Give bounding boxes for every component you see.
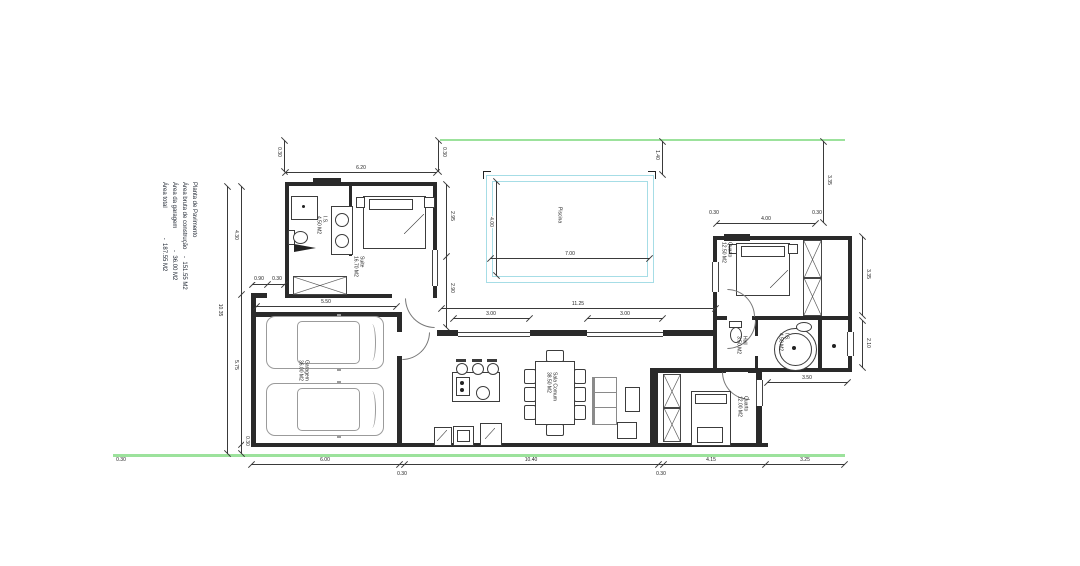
dimension-label: 1.40 bbox=[654, 149, 659, 161]
dimension-line bbox=[496, 181, 497, 276]
room-label-suite-bath: I.S. 4.50 M2 bbox=[315, 216, 328, 262]
car bbox=[266, 316, 384, 369]
dimension-label: 2.95 bbox=[449, 210, 454, 222]
pool-corner-mark bbox=[483, 171, 491, 179]
dimension-label: 5.75 bbox=[233, 359, 238, 371]
wall bbox=[663, 330, 715, 336]
dimension-line bbox=[241, 186, 242, 454]
wall bbox=[848, 236, 852, 320]
cooktop bbox=[456, 377, 470, 396]
dimension-line bbox=[716, 223, 816, 224]
coffee-table bbox=[617, 422, 637, 439]
appliance-mark bbox=[437, 430, 447, 441]
dimension-label: 2.10 bbox=[865, 337, 870, 349]
dimension-label: 4.00 bbox=[488, 216, 493, 228]
fixture-dot bbox=[832, 344, 836, 348]
dimension-label: 0.30 bbox=[271, 277, 283, 282]
chair bbox=[546, 350, 564, 362]
room-label-hall: Hall 3.50 M2 bbox=[735, 336, 748, 368]
dimension-line bbox=[587, 318, 663, 319]
room-label-garage: Garagem 36.00 M2 bbox=[297, 360, 310, 394]
wall bbox=[818, 320, 822, 368]
dimension-line bbox=[453, 318, 530, 319]
wall bbox=[713, 236, 717, 262]
dimension-line bbox=[823, 141, 824, 223]
dimension-label: 0.30 bbox=[115, 458, 127, 463]
nightstand bbox=[788, 244, 798, 254]
dimension-label: 0.30 bbox=[396, 472, 408, 477]
car bbox=[266, 383, 384, 436]
room-label-bedroom1: Quarto 12.50 M2 bbox=[720, 242, 733, 286]
dimension-label: 0.30 bbox=[441, 146, 446, 158]
dimension-line bbox=[251, 464, 845, 465]
window bbox=[432, 250, 438, 286]
burner bbox=[460, 388, 464, 392]
dimension-label: 0.30 bbox=[708, 211, 720, 216]
wardrobe bbox=[803, 240, 822, 279]
door-arc bbox=[405, 298, 435, 328]
chair bbox=[574, 405, 586, 420]
dimension-label: 6.20 bbox=[355, 166, 367, 171]
bed-bench bbox=[697, 427, 723, 443]
appliance-mark bbox=[485, 428, 495, 439]
dimension-label: 0.30 bbox=[655, 472, 667, 477]
dimension-label: 7.00 bbox=[564, 252, 576, 257]
stool bbox=[487, 363, 499, 375]
chair bbox=[574, 369, 586, 384]
dimension-label: 10.35 bbox=[217, 303, 222, 318]
dimension-line bbox=[227, 186, 228, 454]
bed-fold bbox=[404, 214, 424, 234]
pool-inner bbox=[492, 181, 648, 277]
title-area-garage: Área da garagem - 36.00 M2 bbox=[171, 182, 177, 342]
dimension-label: 11.25 bbox=[571, 302, 585, 307]
dimension-line bbox=[256, 306, 397, 307]
wall bbox=[433, 286, 437, 298]
dimension-line bbox=[284, 140, 285, 172]
sliding-door bbox=[587, 332, 663, 337]
wall bbox=[397, 356, 402, 447]
window bbox=[724, 234, 750, 241]
wall bbox=[433, 182, 437, 250]
wall bbox=[437, 330, 458, 336]
dimension-label: 0.30 bbox=[811, 211, 823, 216]
dimension-label: 3.00 bbox=[485, 312, 497, 317]
stool-back bbox=[487, 359, 497, 362]
wardrobe bbox=[803, 277, 822, 316]
boundary-line-bottom bbox=[113, 454, 845, 457]
title-plan-name: Planta de Pavimento bbox=[191, 182, 197, 332]
wall bbox=[658, 368, 726, 373]
sink bbox=[476, 386, 490, 400]
chair bbox=[546, 424, 564, 436]
room-label-suite: Suite 16.70 M2 bbox=[352, 256, 365, 298]
burner bbox=[460, 381, 464, 385]
door-arc bbox=[402, 332, 430, 360]
stool bbox=[456, 363, 468, 375]
dimension-line bbox=[441, 308, 716, 309]
bed-fold bbox=[770, 270, 788, 288]
dimension-label: 4.15 bbox=[705, 458, 717, 463]
dimension-label: 4.00 bbox=[760, 217, 772, 222]
wall bbox=[755, 356, 758, 368]
room-label-living: Sala Comum 38.50 M2 bbox=[545, 372, 558, 420]
dimension-line bbox=[490, 258, 650, 259]
shower bbox=[291, 196, 318, 220]
window bbox=[712, 262, 719, 292]
chair bbox=[574, 387, 586, 402]
room-label-bedroom2: Quarto 12.00 M2 bbox=[736, 396, 749, 436]
wall bbox=[397, 312, 402, 332]
wardrobe bbox=[663, 374, 681, 409]
sliding-door bbox=[458, 332, 530, 337]
room-label-pool: Piscina bbox=[556, 207, 562, 235]
title-area-construction: Área bruta de construção - 151.55 M2 bbox=[181, 182, 187, 342]
stool bbox=[472, 363, 484, 375]
stool-back bbox=[472, 359, 482, 362]
bed-pillow bbox=[741, 246, 785, 257]
toilet bbox=[293, 231, 308, 244]
dimension-label: 2.90 bbox=[449, 282, 454, 294]
wall bbox=[251, 293, 267, 298]
boundary-line-top bbox=[440, 139, 845, 141]
sink bbox=[335, 213, 349, 227]
window bbox=[756, 380, 763, 406]
dimension-label: 10.40 bbox=[524, 458, 539, 463]
wall bbox=[530, 330, 587, 336]
dimension-line bbox=[662, 141, 663, 175]
dimension-label: 0.30 bbox=[244, 435, 249, 447]
door-leaf bbox=[294, 244, 316, 252]
stool-back bbox=[456, 359, 466, 362]
shower-drain bbox=[302, 205, 305, 208]
dimension-label: 6.00 bbox=[319, 458, 331, 463]
chair bbox=[524, 405, 536, 420]
pool-corner-mark bbox=[648, 171, 656, 179]
dimension-label: 0.30 bbox=[276, 146, 281, 158]
wall bbox=[650, 368, 658, 447]
dimension-label: 5.50 bbox=[320, 300, 332, 305]
wall bbox=[285, 182, 437, 186]
bed-pillow bbox=[369, 199, 413, 210]
chair bbox=[524, 387, 536, 402]
dimension-line bbox=[767, 382, 848, 383]
dimension-line bbox=[438, 140, 439, 172]
wardrobe bbox=[293, 276, 347, 295]
nightstand bbox=[424, 197, 435, 208]
shower-drain bbox=[792, 346, 796, 350]
dimension-label: 3.35 bbox=[865, 268, 870, 280]
sink bbox=[335, 234, 349, 248]
window bbox=[313, 178, 341, 186]
dimension-line bbox=[862, 320, 863, 368]
dimension-label: 0.90 bbox=[253, 277, 265, 282]
dimension-line bbox=[862, 236, 863, 316]
wardrobe bbox=[663, 407, 681, 442]
dimension-label: 3.00 bbox=[619, 312, 631, 317]
room-label-bath: I.S. 4.50 M2 bbox=[777, 333, 790, 365]
dimension-label: 3.25 bbox=[799, 458, 811, 463]
nightstand bbox=[356, 197, 365, 208]
window bbox=[847, 332, 854, 356]
dimension-label: 3.50 bbox=[801, 376, 813, 381]
wall bbox=[713, 320, 717, 368]
wall bbox=[752, 316, 852, 320]
floor-plan: Planta de Pavimento Área bruta de constr… bbox=[0, 0, 1080, 566]
tv-unit bbox=[625, 387, 640, 412]
dimension-line bbox=[285, 172, 437, 173]
dimension-label: 3.35 bbox=[826, 174, 831, 186]
chair bbox=[524, 369, 536, 384]
sofa bbox=[592, 377, 617, 425]
appliance-inner bbox=[457, 430, 470, 442]
sink bbox=[796, 322, 812, 332]
dimension-label: 4.30 bbox=[233, 229, 238, 241]
title-area-total: Área total - 187.55 M2 bbox=[161, 182, 167, 342]
bed-pillow bbox=[695, 394, 727, 404]
